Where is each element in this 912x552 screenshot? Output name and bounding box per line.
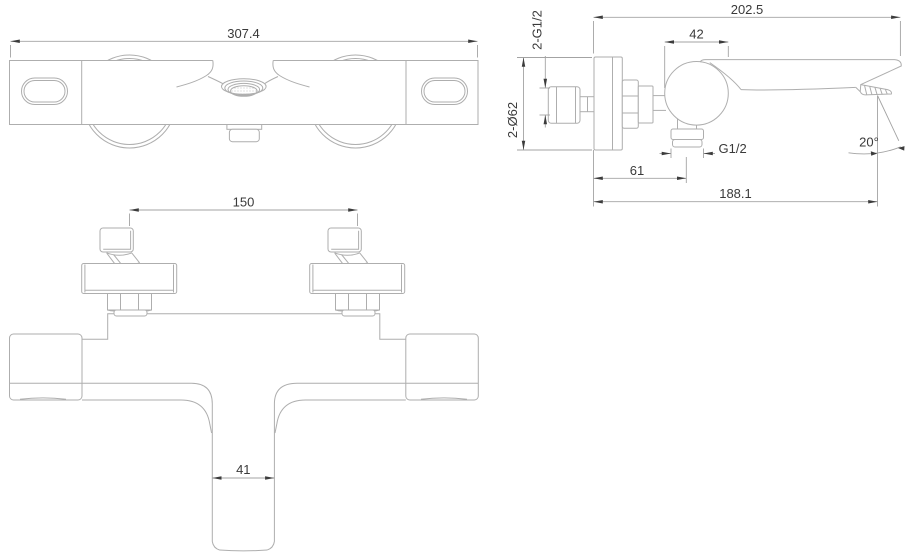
body-collar-side — [638, 86, 653, 123]
aerator-mesh — [231, 86, 258, 97]
dimension-overall-width: 307.4 — [11, 26, 478, 58]
wall-union-right — [310, 228, 405, 316]
drawing-sheet: 307.4 — [0, 0, 912, 552]
dim-label-overall-width: 307.4 — [227, 26, 260, 41]
escutcheon-plate-side — [594, 57, 622, 150]
diverter-tab — [227, 125, 262, 142]
dim-label-overall-depth: 202.5 — [731, 2, 764, 17]
dim-label-inlet-spacing: 150 — [233, 195, 255, 210]
hex-nut-side — [622, 80, 638, 128]
dim-label-spout-reach: 188.1 — [719, 186, 752, 201]
body-front-edge-right — [274, 383, 478, 541]
side-view: 202.5 42 2-G1/2 2-Ø62 — [505, 2, 905, 207]
wall-union — [82, 228, 177, 316]
dim-label-spout-angle: 20° — [859, 134, 879, 149]
dimension-inlet-spacing: 150 — [130, 195, 358, 227]
body-knob-side — [665, 62, 729, 126]
dimension-spout-width: 41 — [212, 462, 274, 478]
technical-drawing: 307.4 — [0, 0, 912, 552]
body-back-edge — [82, 314, 406, 340]
dim-label-escutcheon-diameter: 2-Ø62 — [505, 102, 520, 138]
dimension-spout-angle: 20° — [849, 96, 905, 156]
spout-side — [700, 60, 901, 95]
dimension-overall-depth: 202.5 — [594, 2, 901, 56]
dim-label-knob-width: 42 — [689, 26, 703, 41]
wall-union-side — [548, 87, 594, 124]
front-view: 307.4 — [10, 26, 479, 148]
dim-label-outlet-thread: G1/2 — [719, 141, 747, 156]
dimension-inlet-thread: 2-G1/2 — [530, 10, 551, 127]
right-endcap-top — [406, 334, 479, 400]
body-front-edge-left — [10, 383, 213, 541]
dim-label-outlet-offset: 61 — [630, 163, 644, 178]
dimension-outlet-offset: 61 — [594, 150, 687, 207]
spout-tip — [212, 542, 219, 551]
top-view: 150 41 — [10, 195, 479, 551]
dim-label-spout-width: 41 — [236, 462, 250, 477]
left-endcap-top — [10, 334, 83, 400]
dim-label-inlet-thread: 2-G1/2 — [530, 10, 545, 50]
